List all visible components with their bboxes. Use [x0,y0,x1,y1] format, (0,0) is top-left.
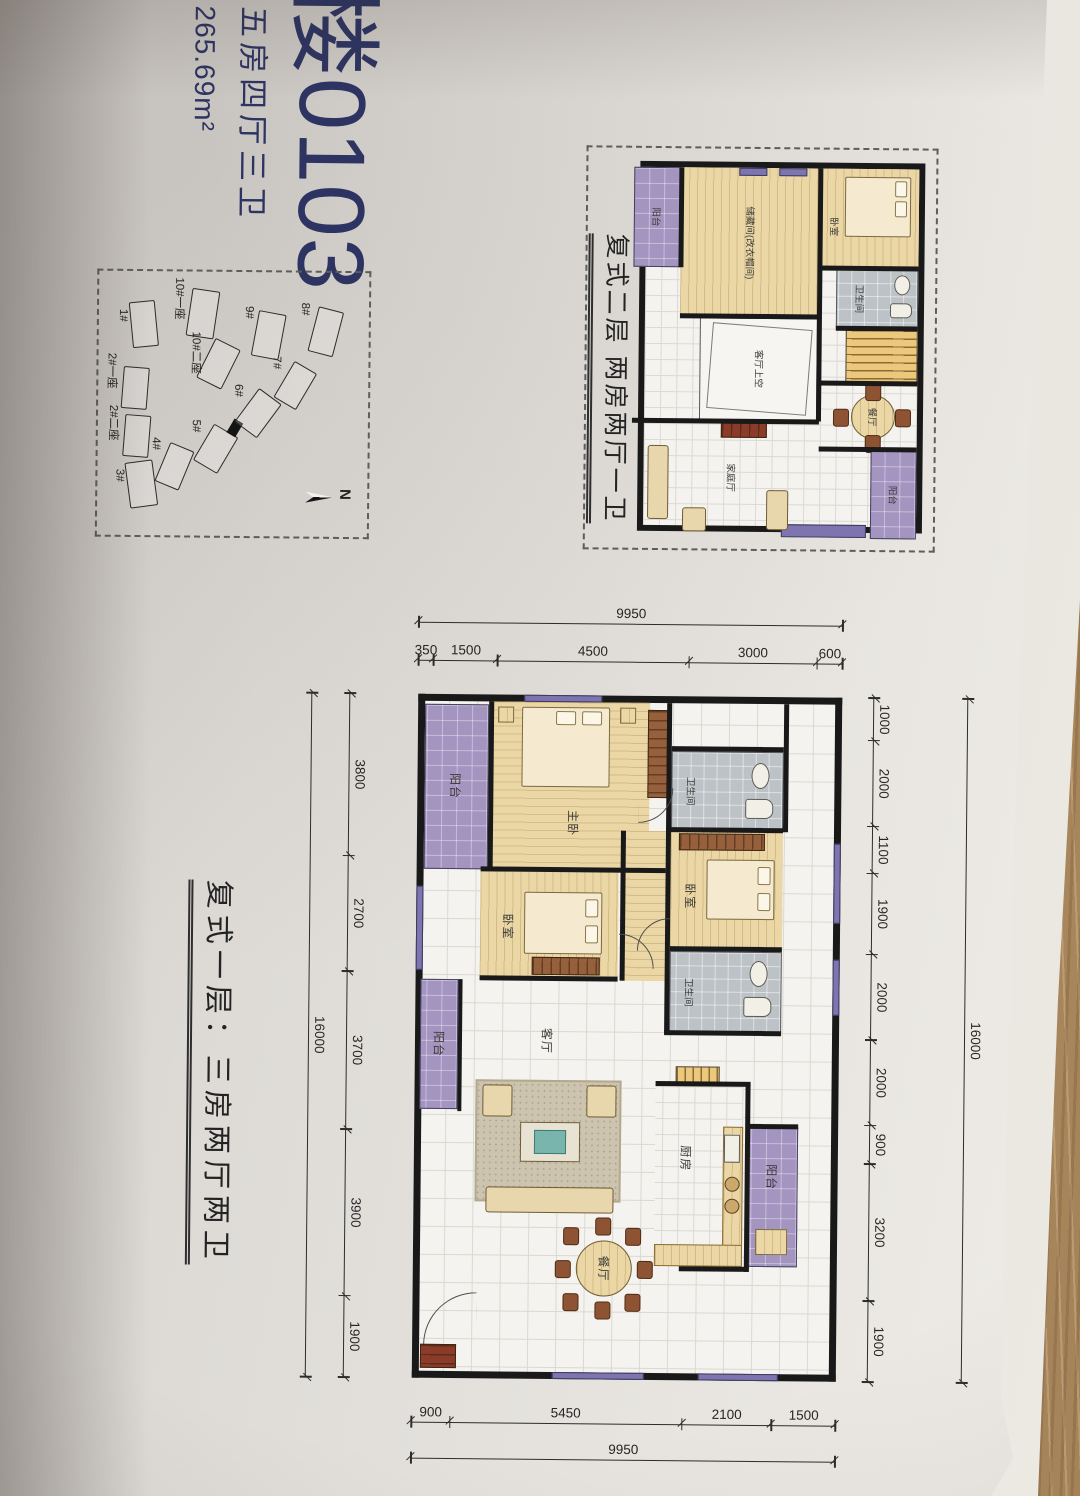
ac-unit-strip [739,168,767,176]
chair-shape [833,409,849,427]
living-room-label: 客厅 [538,1028,555,1054]
dim-segment: 3700 [345,971,368,1129]
dim-value: 3900 [349,1197,363,1227]
kitchen-counter [654,1244,742,1267]
wall [664,1030,781,1036]
dim-segment: 1900 [871,873,893,954]
floor2-stairs [845,329,918,385]
dim-value: 900 [419,1405,442,1419]
site-building-label: 6# [232,384,244,397]
dim-value: 1500 [451,643,481,657]
dim-segment: 1000 [873,698,894,741]
chair-shape [555,1260,571,1278]
chair-shape [625,1228,641,1246]
pillow-shape [895,201,907,217]
chair-shape [563,1227,579,1245]
dim-value: 4500 [578,645,608,659]
wall [671,827,783,833]
pillow-shape [582,711,602,725]
dim-tick [862,1381,874,1383]
dim-tick [834,1456,836,1468]
site-building-label: 8# [299,303,311,316]
wall [656,1081,751,1087]
pillow-shape [585,899,598,917]
window-strip [698,1373,778,1381]
floor2-caption: 复式二层 两房两厅一卫 [586,233,637,523]
floor2-bedroom-label: 卧室 [828,217,842,236]
dim-value: 9950 [616,607,646,621]
site-building-shape [129,300,159,348]
dim-segment: 1100 [872,826,893,873]
dim-segment: 16000 [961,699,989,1383]
dim-value: 3000 [738,646,768,660]
site-building-label: 10#二座 [188,331,204,373]
dim-segment: 3200 [868,1164,890,1301]
floor2-bathroom-label: 卫生间 [853,285,867,314]
window-strip [833,844,841,924]
dim-value: 16000 [313,1016,327,1054]
wall [818,266,918,272]
dim-segment: 9950 [419,602,843,627]
dim-segment: 2000 [872,741,894,827]
wall [457,979,462,1111]
floor2-dining-label: 餐厅 [866,407,880,426]
dim-value: 1900 [348,1321,362,1351]
floor2-balcony-label: 阳台 [650,207,664,226]
dim-segment: 2000 [869,1040,891,1126]
dim-segment: 1900 [867,1301,889,1382]
dim-segment: 1500 [434,640,498,662]
dim-value: 3700 [351,1035,365,1065]
sofa-shape [485,1186,613,1213]
dim-chain-bottom-segments: 3800 2700 3700 3900 1900 [343,693,371,1377]
wardrobe-shape [532,957,600,976]
dim-tick [418,654,420,666]
dim-value: 2000 [874,1068,888,1098]
dim-chain-top-segments: 1000 2000 1100 1900 2000 2000 900 3200 1… [867,698,895,1382]
nightstand-shape [620,708,636,724]
site-building-shape [121,366,150,410]
balcony-label: 阳台 [763,1164,780,1190]
balcony-label: 阳台 [447,773,464,799]
wall [672,746,784,752]
wall [670,946,782,952]
dim-segment: 600 [817,644,843,665]
dim-segment: 3800 [348,693,371,856]
site-building-shape [122,414,151,458]
floor1-plan: 主卧 阳台 卫生间 卧室 卫生间 [412,694,843,1382]
dim-value: 2700 [352,898,366,928]
dim-segment: 3000 [689,642,817,664]
dim-value: 1900 [872,1327,886,1357]
brochure-page: 楼0103 五房四厅三卫 265.69m² 卧室 卫生间 餐厅 阳台 [0,0,1080,1496]
floor2-balcony-label: 阳台 [886,486,900,505]
dim-segment: 9950 [411,1438,835,1463]
site-plan: 1# 2#一座 2#二座 3# 4# 5# 6# 7# 8# 9# 10#一座 … [95,269,372,540]
dim-segment: 900 [869,1126,890,1165]
wall [783,704,789,832]
floor2-storage-label: 储藏间(改衣帽间) [743,183,758,303]
dim-tick [344,692,356,694]
dim-chain-right-total: 9950 [411,1438,835,1463]
bedroom-label: 卧室 [499,913,516,939]
dim-tick [962,698,974,700]
north-label: N [336,489,353,500]
dim-value: 16000 [969,1022,983,1060]
chair-shape [637,1261,653,1279]
dim-value: 2100 [712,1408,742,1422]
bathroom-label: 卫生间 [684,777,698,806]
dim-value: 1900 [876,899,890,929]
kitchen-sink-shape [724,1135,740,1163]
wall [480,975,618,981]
site-building-label: 10#一座 [172,277,188,319]
photo-of-floorplan-brochure: { "title": { "unit_number": "楼0103", "la… [0,0,1080,1496]
washer-shape [755,1229,787,1255]
dim-segment: 1900 [343,1296,365,1377]
dim-value: 2000 [875,982,889,1012]
pillow-shape [585,925,598,943]
layout-type-subtitle: 五房四厅三卫 [232,6,279,222]
dim-value: 600 [819,647,842,661]
dim-segment: 2100 [682,1404,772,1426]
armchair-shape [682,507,706,531]
dim-value: 9950 [608,1443,638,1457]
pillow-shape [757,893,770,911]
balcony-label: 阳台 [430,1031,447,1057]
tv-cabinet-shape [721,423,767,438]
dim-value: 3200 [873,1218,887,1248]
window-strip [416,886,424,970]
chair-shape [594,1301,610,1319]
area-value: 265.69m² [188,5,221,132]
stove-burner [724,1199,739,1214]
nightstand-shape [498,706,514,722]
dim-segment: 3900 [344,1129,367,1296]
unit-number-title: 楼0103 [270,0,409,292]
bedroom-label: 卧室 [682,883,699,909]
armchair-shape [482,1084,512,1116]
dim-value: 5450 [551,1406,581,1420]
dim-tick [410,1452,412,1464]
sofa-shape [647,445,669,519]
north-arrow-icon [305,492,333,503]
master-bedroom-label: 主卧 [564,810,581,836]
dim-chain-top-total: 16000 [961,699,989,1383]
window-strip [524,695,602,703]
site-building-shape [124,459,158,508]
dim-tick [418,616,420,628]
dim-segment: 1500 [771,1405,835,1427]
site-building-label: 2#二座 [106,405,122,441]
dim-value: 2000 [877,769,891,799]
site-building-label: 3# [113,469,125,482]
dim-tick [300,1376,312,1378]
coffee-table-glass [534,1130,566,1154]
wall [678,167,684,267]
dim-tick [868,697,880,699]
pillow-shape [556,711,576,725]
kitchen-label: 厨房 [677,1145,694,1171]
dim-segment: 900 [411,1402,450,1423]
dim-value: 1500 [788,1409,818,1423]
wall [836,326,918,332]
dim-tick [842,620,844,632]
pillow-shape [895,181,907,197]
floor2-family-hall-label: 家庭厅 [724,463,738,492]
site-building-label: 4# [150,437,162,450]
armchair-shape [586,1085,616,1117]
stove-burner [725,1177,740,1192]
wall [829,698,843,1382]
wardrobe-shape [679,833,765,851]
dining-label: 餐厅 [595,1255,612,1281]
dim-tick [410,1416,412,1428]
printed-content-rotated: 楼0103 五房四厅三卫 265.69m² 卧室 卫生间 餐厅 阳台 [0,0,1077,1496]
dim-chain-left-segments: 600 3000 4500 1500 350 [419,640,843,665]
dim-chain-left-total: 9950 [419,602,843,627]
dim-segment: 350 [419,640,434,661]
toilet-shape [890,303,912,318]
dim-segment: 2700 [347,856,369,972]
ac-unit-strip [779,168,807,176]
entry-door-arc [423,1292,477,1346]
entry-cabinet-shape [420,1344,456,1368]
dim-value: 900 [874,1134,888,1157]
site-building-label: 9# [243,306,255,319]
chair-shape [895,409,911,427]
wall [819,381,917,387]
wardrobe-shape [647,710,668,798]
site-building-label: 5# [190,420,202,433]
dim-chain-bottom-total: 16000 [305,693,333,1377]
dim-tick [338,1376,350,1378]
chair-shape [562,1293,578,1311]
dim-segment: 16000 [305,693,333,1377]
wall [746,1124,798,1129]
dim-segment: 5450 [450,1402,682,1425]
dim-value: 3800 [353,759,367,789]
floor2-plan: 卧室 卫生间 餐厅 阳台 储藏间(改衣帽间) 客厅上空 [637,161,926,534]
bathroom-label: 卫生间 [682,978,696,1007]
toilet-shape [745,799,773,819]
site-building-label: 2#一座 [104,353,120,389]
dim-chain-right-segments: 1500 2100 5450 900 [411,1402,835,1427]
dim-segment: 4500 [497,640,689,663]
site-building-label: 1# [117,309,129,322]
site-building-shape [307,306,344,357]
dim-tick [306,692,318,694]
floor1-caption: 复式一层：三房两厅两卫 [185,880,243,1266]
toilet-shape [743,997,771,1017]
dim-value: 1100 [877,835,891,864]
dim-tick [842,658,844,670]
chair-shape [595,1217,611,1235]
dim-value: 1000 [878,704,892,734]
chair-shape [624,1294,640,1312]
sink-shape [894,275,910,295]
wall [819,447,917,453]
site-building-shape [251,310,287,360]
dim-segment: 2000 [870,955,892,1041]
dim-tick [835,1420,837,1432]
lounge-chair-shape [766,490,788,530]
floor2-living-void-label: 客厅上空 [752,350,766,388]
window-strip [832,960,840,1016]
pillow-shape [757,867,770,885]
window-strip [552,1372,644,1380]
wall [679,1266,749,1272]
dim-tick [956,1382,968,1384]
